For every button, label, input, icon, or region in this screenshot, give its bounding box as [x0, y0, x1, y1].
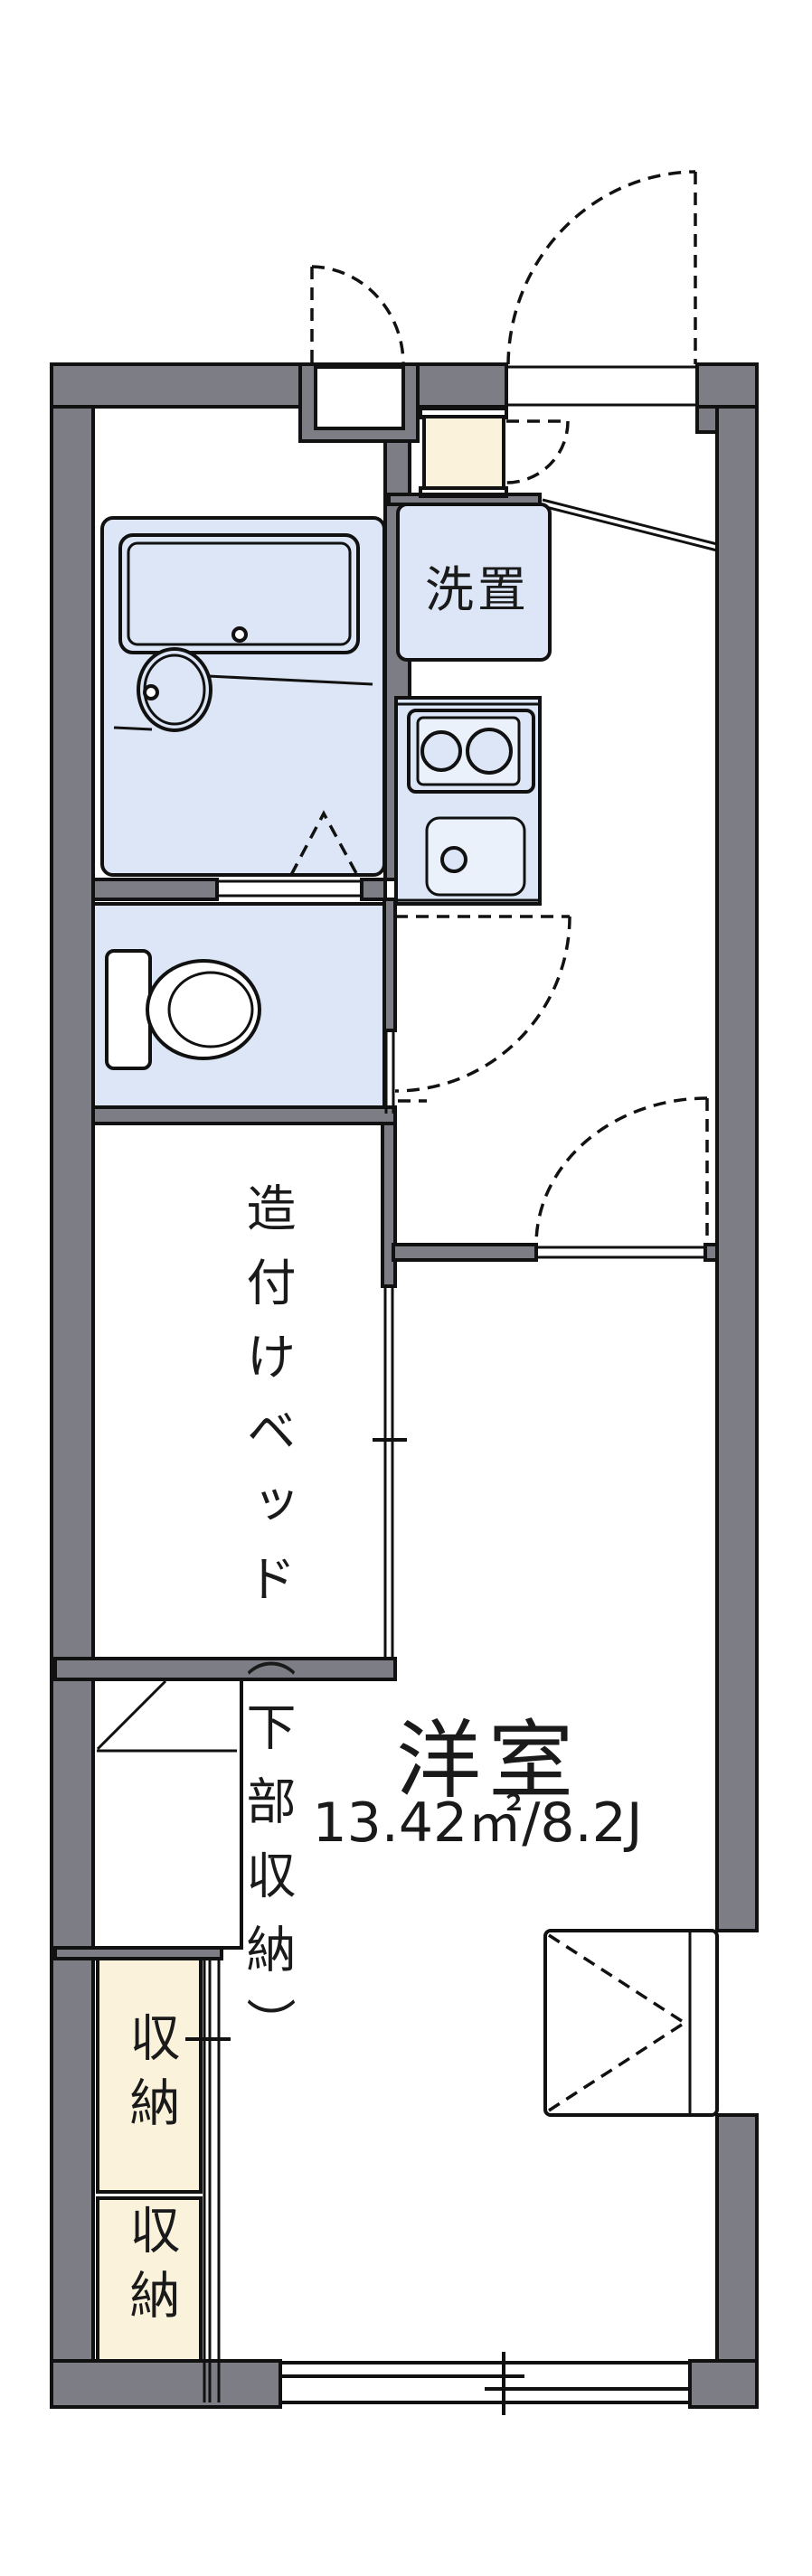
- laundry-label: 洗置: [405, 550, 550, 621]
- toilet-room: [93, 904, 393, 1114]
- bath-window-arc: [312, 267, 403, 364]
- sink-drain-icon: [442, 848, 466, 871]
- genkan-step-line-2: [543, 506, 717, 550]
- toilet-bowl: [147, 961, 260, 1058]
- bed-steps-box: [93, 1679, 241, 1948]
- bay-window: [545, 1931, 717, 2115]
- washroom-door-arc: [506, 421, 568, 483]
- bathroom: [102, 518, 384, 896]
- bathtub-drain-icon: [233, 628, 246, 641]
- wall-top-left: [52, 364, 300, 407]
- entrance-door-arc: [508, 172, 695, 364]
- wall-right-upper: [717, 407, 757, 1931]
- wall-left: [52, 364, 93, 2407]
- wall-entry-step: [697, 407, 717, 432]
- bottom-window: [280, 2352, 690, 2415]
- wall-room-door: [393, 1245, 536, 1260]
- wall-bottom-left: [52, 2361, 280, 2407]
- floorplan-canvas: 洗置 造付けベッド（下部収納） 収納 収納 洋室 13.42㎡/8.2J: [0, 0, 812, 2576]
- bedroom-partition: [373, 1286, 407, 1659]
- built-in-bed-label: 造付けベッド（下部収納）: [184, 1182, 294, 1627]
- wall-top-right-corner: [697, 364, 757, 407]
- room-door-arc: [536, 1098, 707, 1245]
- wall-top-mid: [418, 364, 506, 407]
- hall-door-arc: [395, 917, 570, 1091]
- kitchen: [395, 698, 570, 1101]
- wall-room-door-jamb: [705, 1245, 717, 1260]
- floorplan-drawing: [0, 0, 812, 2576]
- shoe-cabinet-bottom-rail: [420, 488, 506, 496]
- vanity-counter-left-edge: [114, 728, 152, 729]
- washbasin-faucet-icon: [145, 686, 157, 699]
- genkan-step-line-1: [543, 500, 717, 544]
- room-size-label: 13.42㎡/8.2J: [233, 1779, 722, 1857]
- wall-bath-bottom-left: [93, 879, 217, 899]
- storage-top-label: 収納: [123, 2011, 177, 2165]
- stove-burner-right-icon: [467, 729, 511, 773]
- stove-burner-left-icon: [422, 732, 460, 770]
- wall-toilet-bottom: [93, 1107, 395, 1123]
- room-door: [536, 1098, 707, 1257]
- storage-bottom-label: 収納: [123, 2204, 177, 2357]
- bed-steps: [93, 1679, 241, 1948]
- wall-bottom-right: [690, 2361, 757, 2407]
- toilet-tank: [107, 951, 150, 1068]
- bath-window-niche: [316, 367, 403, 428]
- wall-bath-bottom-right: [362, 879, 385, 899]
- wall-bedroom-bottom: [55, 1659, 395, 1679]
- shoe-cabinet: [424, 417, 504, 488]
